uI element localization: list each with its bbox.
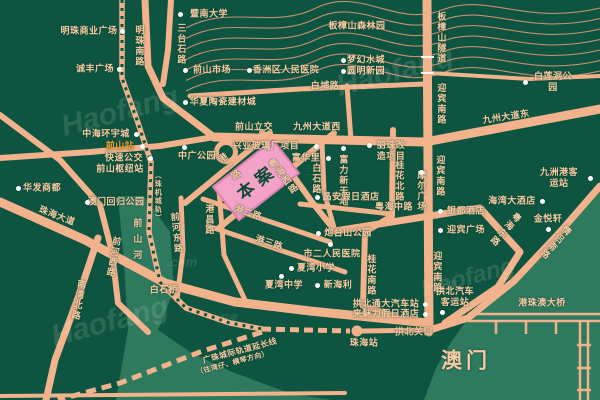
road-santaishi xyxy=(163,0,171,84)
rail-into-station xyxy=(262,329,350,331)
road-connector-345 xyxy=(347,86,351,140)
road-jiuzhou-avenue xyxy=(214,109,600,142)
location-map: 本案 明珠南路三台石路板樟山隧道迎宾南路迎宾南路迎宾南路白埔路前山立交九州大道西… xyxy=(0,0,600,400)
road-bailiandong xyxy=(429,73,600,79)
zhuhai-station-marker xyxy=(352,326,363,337)
road-gongbei-link xyxy=(362,330,428,331)
map-graphics xyxy=(0,0,600,400)
road-baipu xyxy=(190,84,425,96)
road-yingbin-south xyxy=(427,0,429,332)
road-nanwan-north xyxy=(46,238,98,400)
interchange-loop xyxy=(217,143,236,162)
